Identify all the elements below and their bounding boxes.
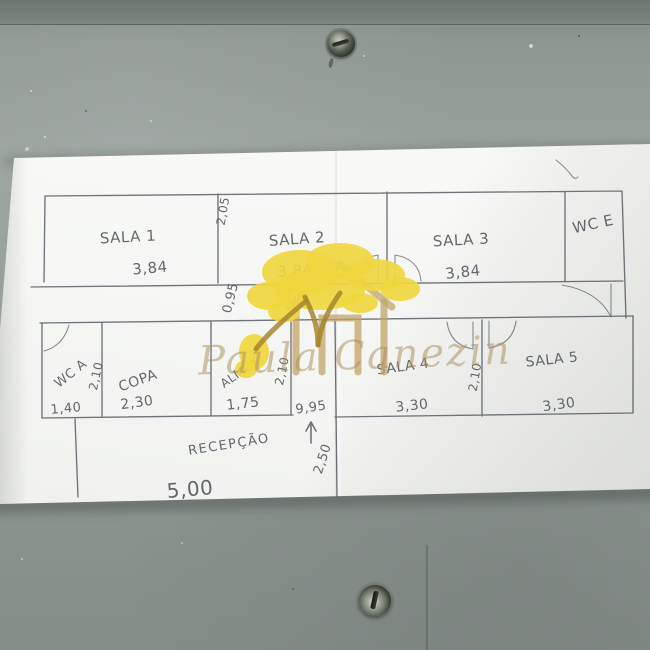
screw-bottom-icon	[359, 585, 391, 616]
watermark-logo	[0, 0, 650, 650]
photo-of-floor-plan-sketch: SALA 1 3,84 2,05 SALA 2 3,84 SALA 3 3,84…	[0, 0, 650, 650]
